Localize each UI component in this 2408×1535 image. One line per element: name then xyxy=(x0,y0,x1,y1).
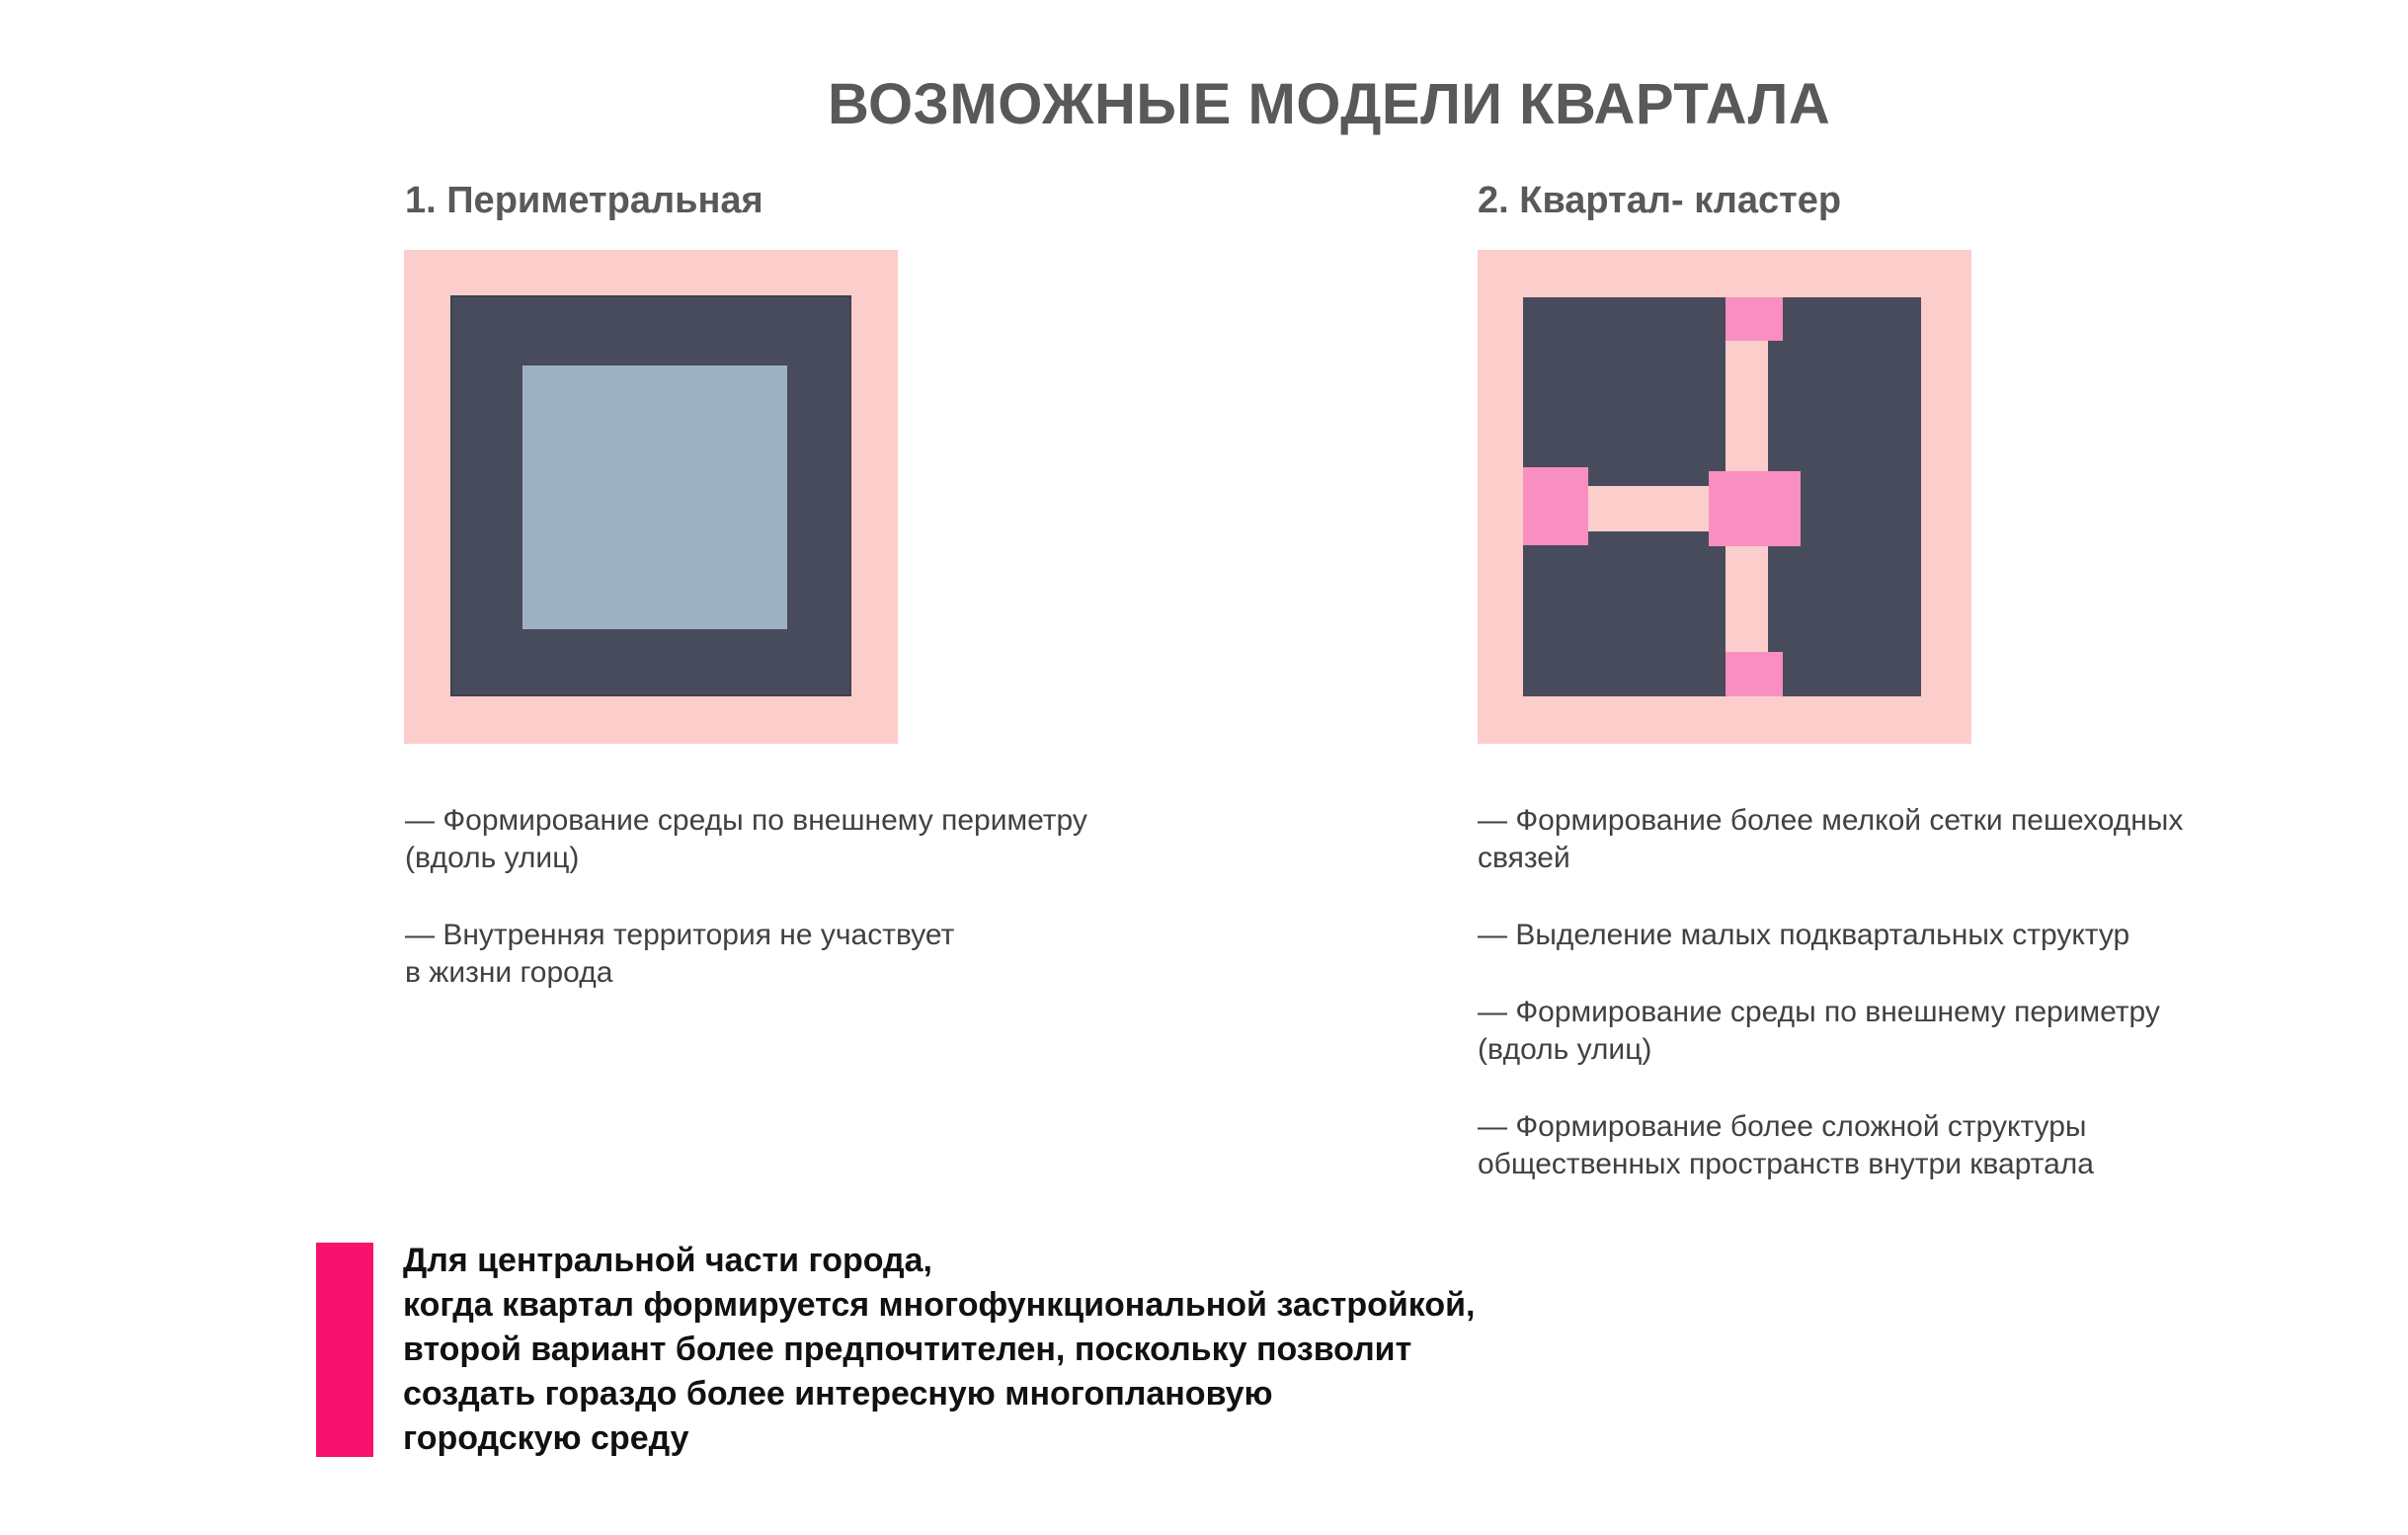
bullet-item: — Формирование среды по внешнему перимет… xyxy=(1478,994,2288,1069)
page-title: ВОЗМОЖНЫЕ МОДЕЛИ КВАРТАЛА xyxy=(828,71,1830,137)
cluster-block-diagram xyxy=(1478,250,1971,744)
conclusion-text: Для центральной части города, когда квар… xyxy=(403,1239,1786,1461)
inner-courtyard xyxy=(522,365,787,629)
bullet-item: — Выделение малых подквартальных структу… xyxy=(1478,917,2288,954)
center-connector-square xyxy=(1709,471,1801,546)
cluster-buildings-area xyxy=(1523,297,1921,696)
bullet-item: — Формирование более мелкой сетки пешехо… xyxy=(1478,802,2288,877)
model-2-heading: 2. Квартал- кластер xyxy=(1478,178,1841,223)
perimeter-block-diagram xyxy=(404,250,898,744)
model-2-bullet-list: — Формирование более мелкой сетки пешехо… xyxy=(1478,802,2288,1223)
top-connector-square xyxy=(1726,297,1783,341)
slide: ВОЗМОЖНЫЕ МОДЕЛИ КВАРТАЛА 1. Периметраль… xyxy=(0,0,2408,1535)
left-connector-square xyxy=(1523,467,1588,545)
conclusion-accent-bar xyxy=(316,1243,373,1457)
model-1-heading: 1. Периметральная xyxy=(405,178,763,223)
model-1-bullet-list: — Формирование среды по внешнему перимет… xyxy=(405,802,1215,1031)
bullet-item: — Внутренняя территория не участвует в ж… xyxy=(405,917,1215,992)
perimeter-building-ring xyxy=(450,295,851,696)
bullet-item: — Формирование среды по внешнему перимет… xyxy=(405,802,1215,877)
bottom-connector-square xyxy=(1726,652,1783,696)
bullet-item: — Формирование более сложной структуры о… xyxy=(1478,1108,2288,1183)
